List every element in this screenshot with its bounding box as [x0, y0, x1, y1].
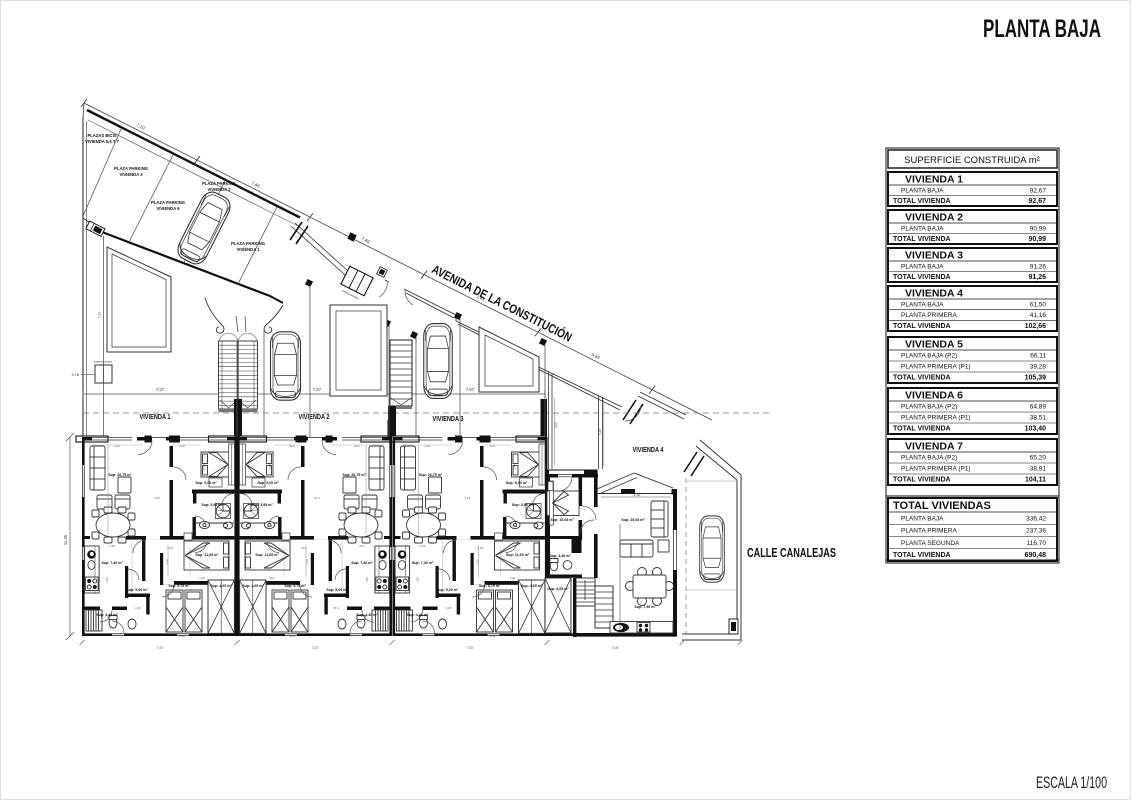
svg-text:TOTAL VIVIENDA: TOTAL VIVIENDA [893, 274, 951, 281]
svg-text:Sup: 9,75 m²: Sup: 9,75 m² [284, 584, 306, 588]
svg-text:Sup: 5,00 m²: Sup: 5,00 m² [437, 588, 459, 592]
svg-text:92,67: 92,67 [1030, 187, 1047, 194]
svg-text:PLAZA PARKING: PLAZA PARKING [114, 166, 148, 171]
svg-text:PLANTA PRIMERA: PLANTA PRIMERA [901, 312, 958, 319]
svg-text:Sup: 9,00 m²: Sup: 9,00 m² [195, 481, 217, 485]
svg-text:Sup: 10,65 m²: Sup: 10,65 m² [550, 518, 574, 522]
svg-text:VIVIENDA 6: VIVIENDA 6 [905, 390, 963, 402]
svg-text:TOTAL VIVIENDA: TOTAL VIVIENDA [893, 198, 951, 205]
svg-text:Sup: 4,40 m²: Sup: 4,40 m² [407, 613, 429, 617]
svg-text:caseta postes: caseta postes [94, 360, 113, 364]
svg-text:7,57: 7,57 [313, 387, 322, 392]
svg-text:116,70: 116,70 [1027, 540, 1047, 547]
svg-text:Sup: 26,75 m²: Sup: 26,75 m² [419, 473, 443, 477]
svg-text:TOTAL VIVIENDA: TOTAL VIVIENDA [893, 552, 951, 559]
svg-text:PLANTA BAJA: PLANTA BAJA [983, 15, 1101, 43]
svg-text:VIVIENDA 5: VIVIENDA 5 [905, 339, 963, 351]
svg-text:PLANTA BAJA: PLANTA BAJA [901, 302, 944, 309]
svg-text:SUPERFICIE CONSTRUIDA m²: SUPERFICIE CONSTRUIDA m² [904, 155, 1040, 166]
svg-text:TOTAL VIVIENDAS: TOTAL VIVIENDAS [893, 500, 991, 512]
svg-text:TOTAL VIVIENDA: TOTAL VIVIENDA [893, 236, 951, 243]
svg-text:Sup: 9,75 m²: Sup: 9,75 m² [479, 584, 501, 588]
svg-text:Sup: 4,40 m²: Sup: 4,40 m² [356, 613, 378, 617]
svg-text:Sup: 26,75 m²: Sup: 26,75 m² [342, 473, 366, 477]
svg-text:64,89: 64,89 [1030, 404, 1047, 411]
svg-text:Sup: 4,65 m²: Sup: 4,65 m² [242, 584, 264, 588]
svg-text:Sup: 4,40 m²: Sup: 4,40 m² [549, 554, 571, 558]
svg-text:PLANTA BAJA (P2): PLANTA BAJA (P2) [901, 353, 957, 360]
svg-text:7,00: 7,00 [612, 646, 619, 650]
svg-text:Sup: 9,75 m²: Sup: 9,75 m² [168, 584, 190, 588]
svg-text:Sup: 3,95 m²: Sup: 3,95 m² [201, 503, 223, 507]
svg-text:Sup: 4,65 m²: Sup: 4,65 m² [210, 584, 232, 588]
svg-text:Sup: 11,65 m²: Sup: 11,65 m² [195, 553, 219, 557]
svg-text:VIVIENDA 4: VIVIENDA 4 [905, 288, 963, 300]
svg-text:Sup: 4,65 m²: Sup: 4,65 m² [547, 587, 569, 591]
svg-text:VIVIENDA 3: VIVIENDA 3 [119, 172, 143, 177]
svg-text:91,26: 91,26 [1028, 274, 1046, 281]
svg-text:PLANTA PRIMERA: PLANTA PRIMERA [901, 528, 958, 535]
svg-text:VIVIENDA 5,6 Y 7: VIVIENDA 5,6 Y 7 [85, 139, 120, 144]
svg-text:Sup: 9,00 m²: Sup: 9,00 m² [257, 481, 279, 485]
svg-text:PLANTA SEGUNDA: PLANTA SEGUNDA [901, 540, 960, 547]
svg-text:PLANTA PRIMERA (P1): PLANTA PRIMERA (P1) [901, 466, 971, 473]
svg-text:7,57: 7,57 [157, 646, 164, 650]
svg-text:103,40: 103,40 [1025, 426, 1047, 433]
svg-text:38,51: 38,51 [1030, 415, 1047, 422]
svg-text:Sup: 3,95 m²: Sup: 3,95 m² [251, 503, 273, 507]
svg-text:VIVIENDA 2: VIVIENDA 2 [299, 414, 330, 421]
svg-text:Sup: 4,65 m²: Sup: 4,65 m² [521, 584, 543, 588]
svg-text:4,18: 4,18 [598, 429, 602, 435]
svg-text:TOTAL VIVIENDA: TOTAL VIVIENDA [893, 375, 951, 382]
svg-text:336,42: 336,42 [1026, 515, 1046, 522]
svg-text:PLANTA BAJA: PLANTA BAJA [901, 515, 944, 522]
svg-text:7,57: 7,57 [466, 387, 475, 392]
svg-text:7,57: 7,57 [156, 387, 165, 392]
svg-text:PLAZA PARKING: PLAZA PARKING [151, 200, 185, 205]
svg-text:PLAZAS BICIS: PLAZAS BICIS [87, 133, 116, 138]
svg-text:VIVIENDA 4: VIVIENDA 4 [633, 447, 664, 454]
svg-text:Sup: 11,65 m²: Sup: 11,65 m² [255, 553, 279, 557]
svg-text:105,39: 105,39 [1025, 375, 1047, 382]
svg-text:TOTAL VIVIENDA: TOTAL VIVIENDA [893, 477, 951, 484]
svg-text:41,16: 41,16 [1030, 312, 1047, 319]
svg-text:VIVIENDA 1: VIVIENDA 1 [236, 247, 260, 252]
svg-text:92,67: 92,67 [1028, 198, 1046, 205]
svg-text:91,26: 91,26 [1030, 263, 1047, 270]
svg-text:66,11: 66,11 [1030, 353, 1046, 360]
svg-text:VIVIENDA 2: VIVIENDA 2 [207, 187, 231, 192]
svg-text:7,57: 7,57 [312, 646, 319, 650]
svg-text:Sup: 11,65 m²: Sup: 11,65 m² [506, 553, 530, 557]
svg-text:Sup: 7,40 m²: Sup: 7,40 m² [101, 561, 123, 565]
svg-text:39,28: 39,28 [1030, 364, 1047, 371]
svg-text:CALLE CANALEJAS: CALLE CANALEJAS [747, 546, 836, 560]
svg-text:4,76: 4,76 [72, 373, 79, 377]
svg-text:Sup: 3,95 m²: Sup: 3,95 m² [512, 503, 534, 507]
svg-text:104,11: 104,11 [1025, 477, 1046, 484]
svg-text:1,30: 1,30 [634, 493, 641, 497]
svg-text:PLANTA BAJA: PLANTA BAJA [901, 225, 944, 232]
svg-text:Sup: 7,95 m²: Sup: 7,95 m² [634, 605, 656, 609]
svg-text:PLAZA PARKING: PLAZA PARKING [231, 241, 265, 246]
svg-text:11,35: 11,35 [63, 534, 68, 545]
svg-text:VIVIENDA 1: VIVIENDA 1 [905, 174, 963, 186]
svg-text:PLANTA PRIMERA (P1): PLANTA PRIMERA (P1) [901, 364, 971, 371]
svg-text:61,50: 61,50 [1030, 302, 1047, 309]
svg-text:VIVIENDA 6: VIVIENDA 6 [156, 206, 180, 211]
svg-text:TOTAL VIVIENDA: TOTAL VIVIENDA [893, 323, 951, 330]
svg-text:VIVIENDA 2: VIVIENDA 2 [905, 212, 963, 224]
svg-text:VIVIENDA 1: VIVIENDA 1 [140, 414, 171, 421]
svg-text:PLANTA PRIMERA (P1): PLANTA PRIMERA (P1) [901, 415, 971, 422]
svg-text:65,20: 65,20 [1030, 455, 1047, 462]
svg-text:PLAZA PARKING: PLAZA PARKING [202, 181, 236, 186]
svg-text:Sup: 9,00 m²: Sup: 9,00 m² [506, 481, 528, 485]
svg-text:PLANTA BAJA (P2): PLANTA BAJA (P2) [901, 404, 957, 411]
svg-text:Sup: 26,75 m²: Sup: 26,75 m² [108, 473, 132, 477]
svg-text:Sup: 5,00 m²: Sup: 5,00 m² [326, 588, 348, 592]
svg-text:90,99: 90,99 [1030, 225, 1047, 232]
svg-text:TOTAL VIVIENDA: TOTAL VIVIENDA [893, 426, 951, 433]
svg-text:ESCALA 1/100: ESCALA 1/100 [1036, 773, 1107, 792]
svg-text:Sup: 7,40 m²: Sup: 7,40 m² [351, 561, 373, 565]
svg-text:PLANTA BAJA: PLANTA BAJA [901, 263, 944, 270]
svg-text:102,66: 102,66 [1025, 323, 1047, 330]
svg-text:Sup: 5,00 m²: Sup: 5,00 m² [126, 588, 148, 592]
svg-text:VIVIENDA 3: VIVIENDA 3 [433, 416, 464, 423]
svg-text:Sup: 4,40 m²: Sup: 4,40 m² [96, 613, 118, 617]
svg-text:7,57: 7,57 [467, 646, 474, 650]
svg-text:Sup: 25,65 m²: Sup: 25,65 m² [621, 518, 645, 522]
svg-text:5,05: 5,05 [554, 422, 558, 428]
svg-text:90,99: 90,99 [1028, 236, 1046, 243]
svg-text:PLANTA BAJA (P2): PLANTA BAJA (P2) [901, 455, 957, 462]
svg-text:237,36: 237,36 [1026, 528, 1046, 535]
svg-text:VIVIENDA 7: VIVIENDA 7 [905, 441, 963, 453]
svg-text:Sup: 7,40 m²: Sup: 7,40 m² [412, 561, 434, 565]
svg-text:690,48: 690,48 [1025, 552, 1047, 559]
svg-text:VIVIENDA 3: VIVIENDA 3 [905, 250, 963, 262]
svg-text:7,10: 7,10 [98, 312, 102, 319]
svg-text:PLANTA BAJA: PLANTA BAJA [901, 187, 944, 194]
svg-text:38,91: 38,91 [1030, 466, 1047, 473]
